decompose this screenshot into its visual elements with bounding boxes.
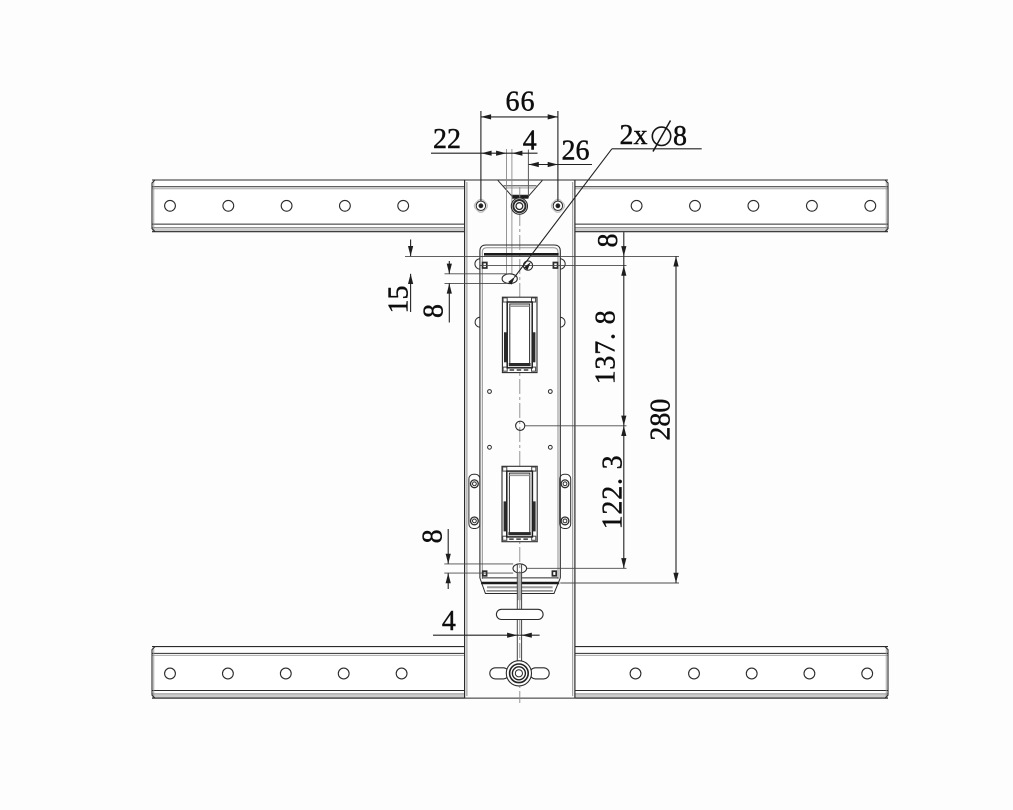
svg-text:8: 8 bbox=[593, 234, 624, 248]
svg-text:15: 15 bbox=[384, 286, 415, 314]
svg-text:8: 8 bbox=[673, 121, 687, 152]
svg-text:4: 4 bbox=[523, 125, 537, 156]
svg-text:4: 4 bbox=[442, 606, 456, 637]
svg-text:8: 8 bbox=[417, 529, 448, 543]
svg-text:26: 26 bbox=[562, 136, 590, 167]
svg-text:280: 280 bbox=[646, 399, 677, 441]
svg-text:2x: 2x bbox=[620, 120, 648, 151]
svg-text:22: 22 bbox=[433, 124, 461, 155]
svg-text:66: 66 bbox=[506, 86, 536, 117]
svg-text:8: 8 bbox=[419, 304, 450, 318]
svg-text:122. 3: 122. 3 bbox=[598, 455, 629, 530]
svg-text:137. 8: 137. 8 bbox=[591, 310, 622, 385]
